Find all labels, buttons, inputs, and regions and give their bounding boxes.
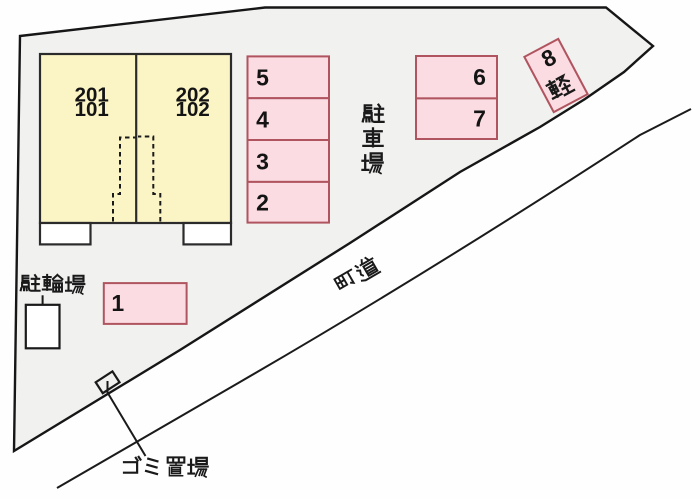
svg-text:5: 5 xyxy=(256,65,269,91)
svg-text:2: 2 xyxy=(256,190,269,216)
svg-text:102: 102 xyxy=(176,98,210,121)
svg-text:7: 7 xyxy=(473,106,486,132)
svg-text:6: 6 xyxy=(473,64,486,90)
svg-text:101: 101 xyxy=(75,98,109,121)
svg-text:1: 1 xyxy=(111,290,124,316)
svg-text:4: 4 xyxy=(256,107,269,133)
svg-text:3: 3 xyxy=(256,148,269,174)
